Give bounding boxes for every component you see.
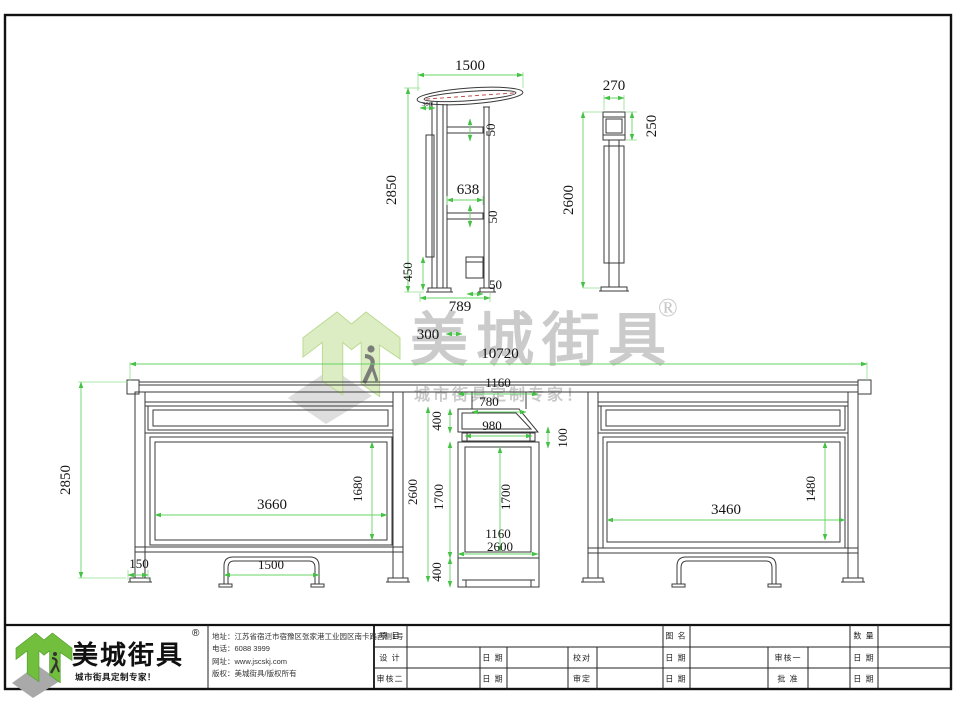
dim-side-300: 300: [417, 327, 440, 343]
titleblock-label-project: 项 目: [379, 631, 400, 642]
dim-kiosk-400-bottom: 400: [429, 562, 444, 582]
dim-left-1500: 1500: [258, 557, 284, 572]
titleblock-label-proofread: 校对: [573, 653, 591, 664]
dim-kiosk-2600-inner: 2600: [487, 539, 513, 554]
company-copyright: 版权：美城街具/版权所有: [212, 668, 372, 680]
titleblock-label-approve: 审定: [573, 674, 591, 685]
dim-kiosk-100: 100: [555, 428, 570, 448]
dim-right-3460: 3460: [711, 502, 741, 518]
side-panel-edge: [426, 135, 434, 257]
dim-post-2600: 2600: [561, 185, 577, 215]
post-view-dimensions: 270 250 2600: [561, 78, 660, 288]
dim-right-1480: 1480: [803, 476, 818, 502]
registered-trademark-icon: ®: [192, 628, 199, 639]
dim-side-50c: 50: [489, 277, 502, 292]
post-view-structure: [599, 112, 629, 291]
titleblock-label-date-5: 日 期: [665, 674, 686, 685]
dim-side-638: 638: [457, 182, 480, 198]
shelter-structure: [127, 380, 871, 587]
dim-front-2850: 2850: [58, 465, 74, 495]
dim-kiosk-1700: 1700: [431, 484, 446, 510]
drawing-sheet: 美城街具 ® 城市街具定制专家！ 1500 2850: [0, 0, 960, 704]
dim-kiosk-980: 980: [482, 418, 502, 433]
dim-side-789: 789: [449, 299, 472, 315]
company-tagline: 城市街具定制专家！: [75, 671, 156, 683]
company-brand-name: 美城街具: [72, 635, 184, 672]
dim-kiosk-1160-top: 1160: [485, 375, 511, 390]
titleblock-label-date-3: 日 期: [853, 653, 874, 664]
dim-side-300-small: 300: [422, 101, 432, 108]
dim-kiosk-2600: 2600: [405, 479, 420, 505]
company-address: 地址：江苏省宿迁市宿豫区张家港工业园区南卡路西侧1号: [212, 631, 372, 643]
titleblock-label-date-6: 日 期: [853, 674, 874, 685]
dim-kiosk-1700-inner: 1700: [498, 484, 513, 510]
watermark-logo: [288, 312, 400, 424]
dim-left-150: 150: [129, 556, 149, 571]
company-info: 地址：江苏省宿迁市宿豫区张家港工业园区南卡路西侧1号 电话：6088 3999 …: [212, 631, 372, 680]
dim-side-450: 450: [400, 262, 415, 282]
dim-side-50b: 50: [485, 211, 500, 224]
dim-kiosk-780: 780: [479, 394, 499, 409]
dim-left-3660: 3660: [257, 497, 287, 513]
right-section: [581, 392, 865, 587]
company-phone: 电话：6088 3999: [212, 643, 372, 655]
titleblock-label-date-1: 日 期: [482, 653, 503, 664]
watermark-registered-icon: ®: [658, 293, 678, 322]
drawing-canvas: 美城街具 ® 城市街具定制专家！ 1500 2850: [0, 0, 960, 704]
titleblock-label-review-1: 审核一: [775, 653, 802, 664]
watermark-brand-text: 美城街具: [410, 308, 674, 373]
titleblock-label-date-2: 日 期: [665, 653, 686, 664]
side-bin: [466, 257, 483, 278]
side-view-dimensions: 1500 2850 300 50 638 50 450 50 789 300: [384, 58, 523, 343]
dim-post-270: 270: [603, 78, 626, 94]
titleblock-label-date-4: 日 期: [482, 674, 503, 685]
titleblock-label-design: 设 计: [379, 653, 400, 664]
dim-side-50a: 50: [483, 124, 498, 137]
dim-side-1500: 1500: [455, 58, 485, 74]
kiosk-base: [458, 558, 539, 587]
dim-side-2850: 2850: [384, 175, 400, 205]
dim-kiosk-400-top: 400: [429, 411, 444, 431]
titleblock-label-quantity: 数 量: [853, 631, 874, 642]
company-website: 网址：www.jscskj.com: [212, 656, 372, 668]
dim-left-1680: 1680: [350, 476, 365, 502]
titleblock-label-drawing-name: 图 名: [665, 631, 686, 642]
titleblock-label-review-2: 审核二: [377, 674, 404, 685]
dim-post-250: 250: [644, 115, 660, 138]
titleblock-label-ratify: 批 准: [777, 674, 798, 685]
dim-front-10720: 10720: [481, 346, 519, 362]
